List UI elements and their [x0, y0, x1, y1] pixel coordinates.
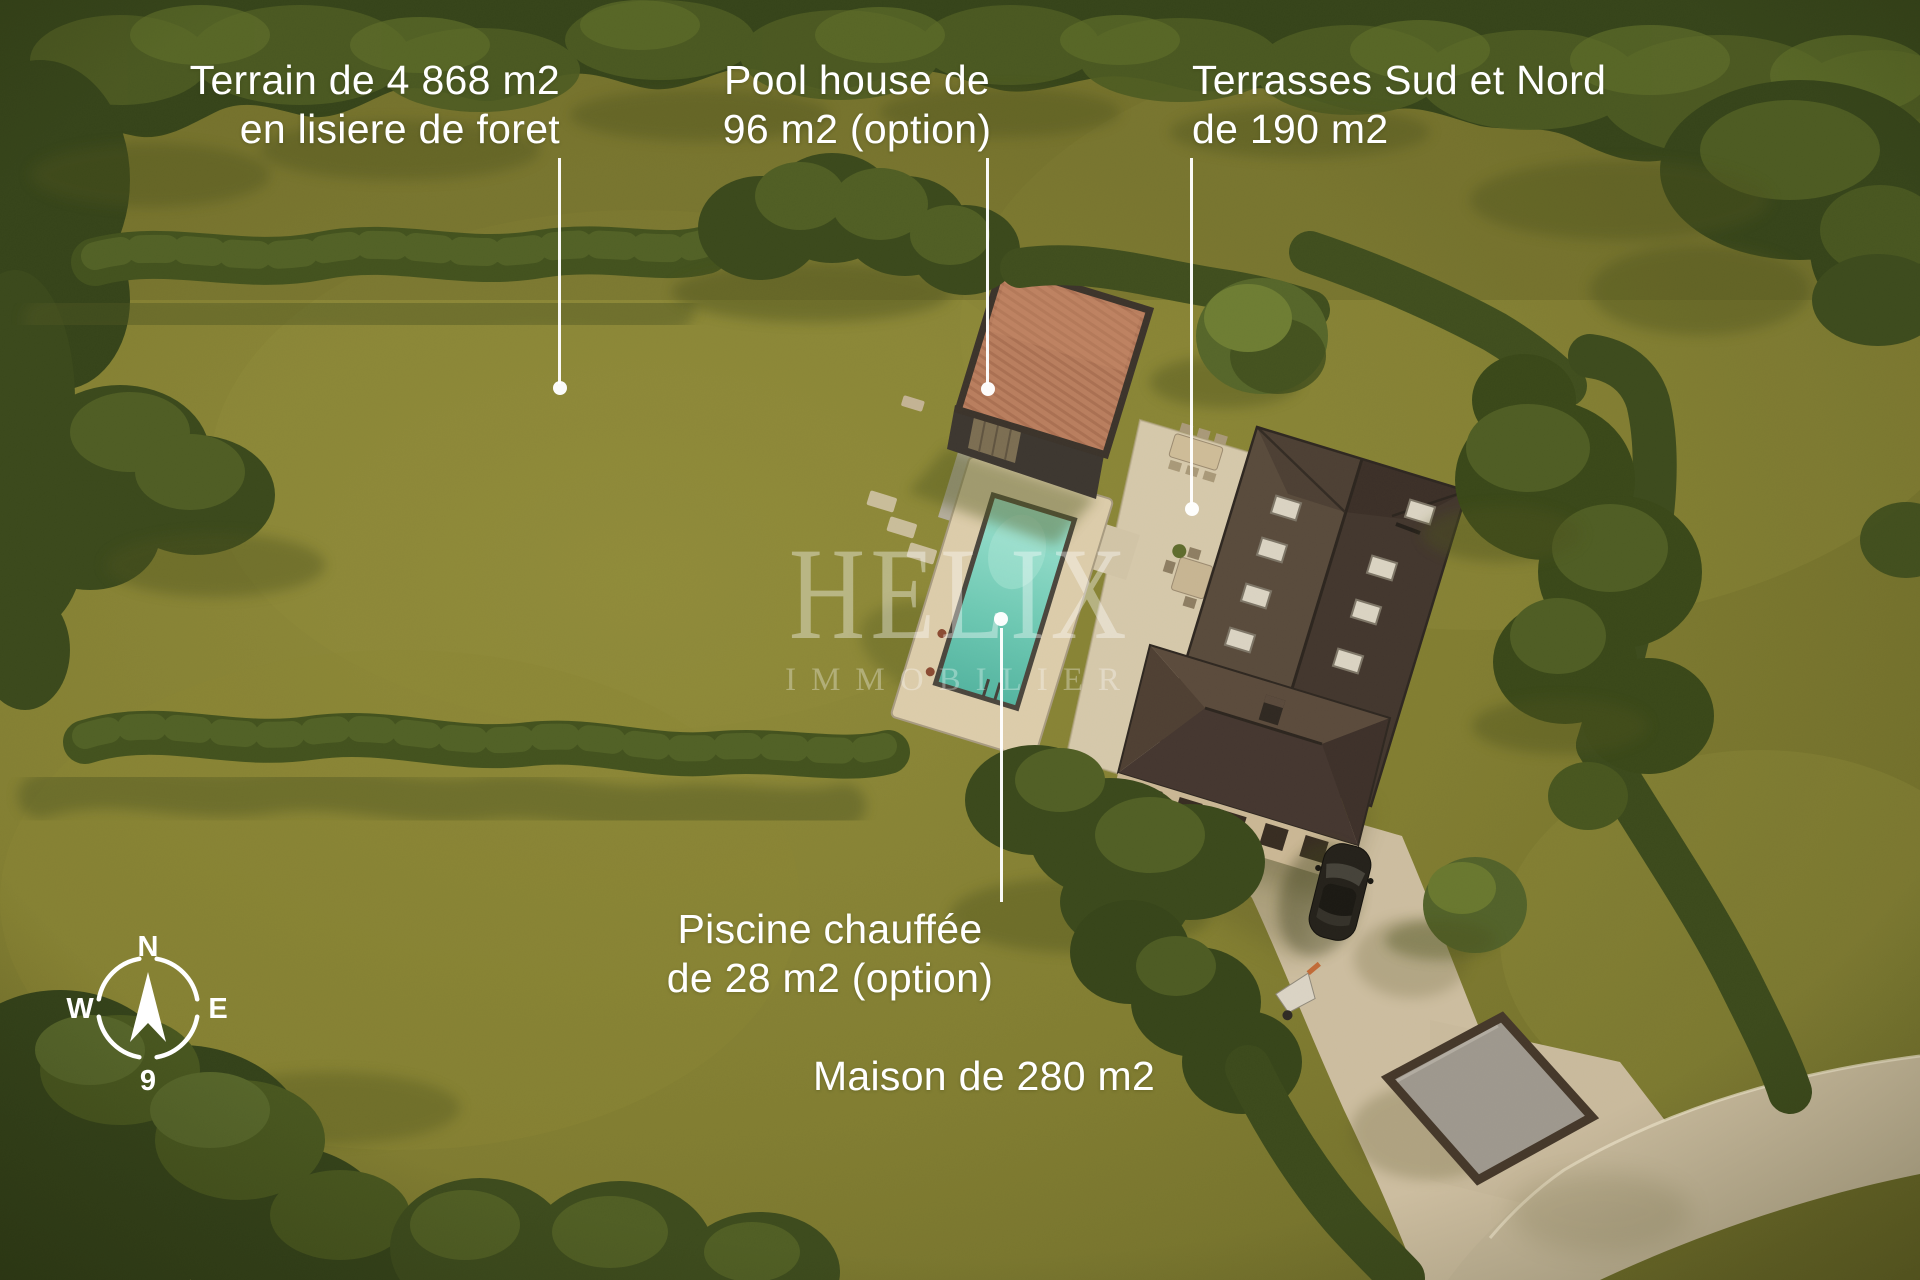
annotation-house: Maison de 280 m2	[734, 1052, 1234, 1101]
annotation-terraces-line1: Terrasses Sud et Nord	[1192, 56, 1606, 105]
annotation-pool-house-line2: 96 m2 (option)	[607, 105, 1107, 154]
terrain-leader-line	[558, 158, 561, 384]
compass-south-label: 9	[140, 1065, 156, 1097]
annotation-pool-line2: de 28 m2 (option)	[580, 954, 1080, 1003]
pool-house-leader-dot	[981, 382, 995, 396]
annotation-pool-house: Pool house de 96 m2 (option)	[607, 56, 1107, 154]
compass-east-label: E	[208, 993, 227, 1025]
annotation-pool-house-line1: Pool house de	[607, 56, 1107, 105]
terrain-leader-dot	[553, 381, 567, 395]
pool-house-leader-line	[986, 158, 989, 384]
compass-west-label: W	[66, 993, 94, 1025]
annotation-terraces: Terrasses Sud et Nord de 190 m2	[1192, 56, 1606, 154]
pool-leader-line	[1000, 628, 1003, 902]
annotation-house-line1: Maison de 280 m2	[734, 1052, 1234, 1101]
annotation-terrain-line2: en lisiere de foret	[60, 105, 560, 154]
terraces-leader-dot	[1185, 502, 1199, 516]
compass-rose: N E W 9	[63, 920, 239, 1100]
terraces-leader-line	[1190, 158, 1193, 504]
pool-leader-dot	[994, 612, 1008, 626]
annotation-terrain: Terrain de 4 868 m2 en lisiere de foret	[60, 56, 560, 154]
compass-north-label: N	[138, 931, 159, 963]
annotation-pool: Piscine chauffée de 28 m2 (option)	[580, 905, 1080, 1003]
aerial-property-photo: HELIX IMMOBILIER Terrain de 4 868 m2 en …	[0, 0, 1920, 1280]
annotation-terrain-line1: Terrain de 4 868 m2	[60, 56, 560, 105]
compass-needle	[130, 972, 166, 1042]
annotation-pool-line1: Piscine chauffée	[580, 905, 1080, 954]
annotation-terraces-line2: de 190 m2	[1192, 105, 1606, 154]
